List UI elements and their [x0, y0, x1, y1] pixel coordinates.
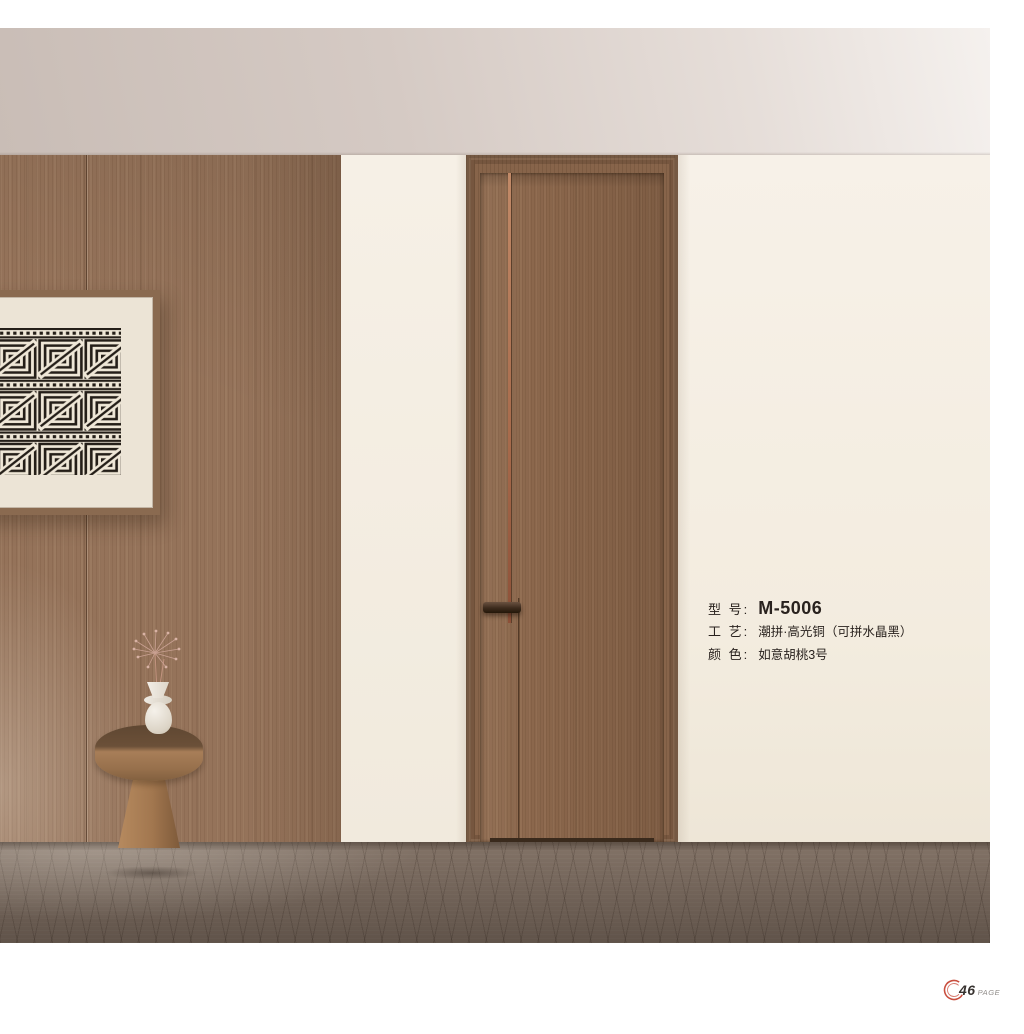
- page-label: PAGE: [978, 988, 1001, 997]
- door-handle: [483, 602, 521, 613]
- spec-model-row: 型 号: M-5006: [708, 599, 978, 619]
- product-spec-block: 型 号: M-5006 工 艺: 潮拼·高光铜（可拼水晶黑） 颜 色: 如意胡桃…: [708, 599, 978, 665]
- page-number: 46: [959, 982, 976, 998]
- color-label: 颜 色:: [708, 645, 749, 664]
- parquet-floor: [0, 842, 990, 943]
- side-table: [95, 725, 203, 848]
- copper-inlay-strip: [508, 173, 511, 623]
- vase-body: [145, 702, 172, 734]
- table-leg: [118, 771, 180, 848]
- sculptural-vase: [143, 682, 173, 742]
- tribal-pattern-svg: [0, 328, 121, 475]
- page-footer-logo: 46 PAGE: [941, 977, 1000, 1003]
- framed-artwork: [0, 290, 160, 515]
- table-floor-shadow: [104, 866, 200, 880]
- interior-scene-photo: 型 号: M-5006 工 艺: 潮拼·高光铜（可拼水晶黑） 颜 色: 如意胡桃…: [0, 28, 990, 943]
- door-unit: [466, 155, 678, 844]
- cream-wall-left-of-door: [341, 155, 466, 843]
- craft-value: 潮拼·高光铜（可拼水晶黑）: [758, 623, 912, 642]
- cream-wall-right-of-door: [678, 155, 990, 843]
- color-value: 如意胡桃3号: [758, 646, 827, 665]
- spec-color-row: 颜 色: 如意胡桃3号: [708, 645, 978, 665]
- ceiling: [0, 28, 990, 155]
- door-leaf: [480, 173, 664, 842]
- tribal-pattern-print: [0, 328, 121, 475]
- door-edge-groove: [518, 598, 520, 842]
- model-label: 型 号:: [708, 600, 749, 619]
- model-value: M-5006: [758, 599, 822, 618]
- spec-craft-row: 工 艺: 潮拼·高光铜（可拼水晶黑）: [708, 622, 978, 642]
- craft-label: 工 艺:: [708, 622, 749, 641]
